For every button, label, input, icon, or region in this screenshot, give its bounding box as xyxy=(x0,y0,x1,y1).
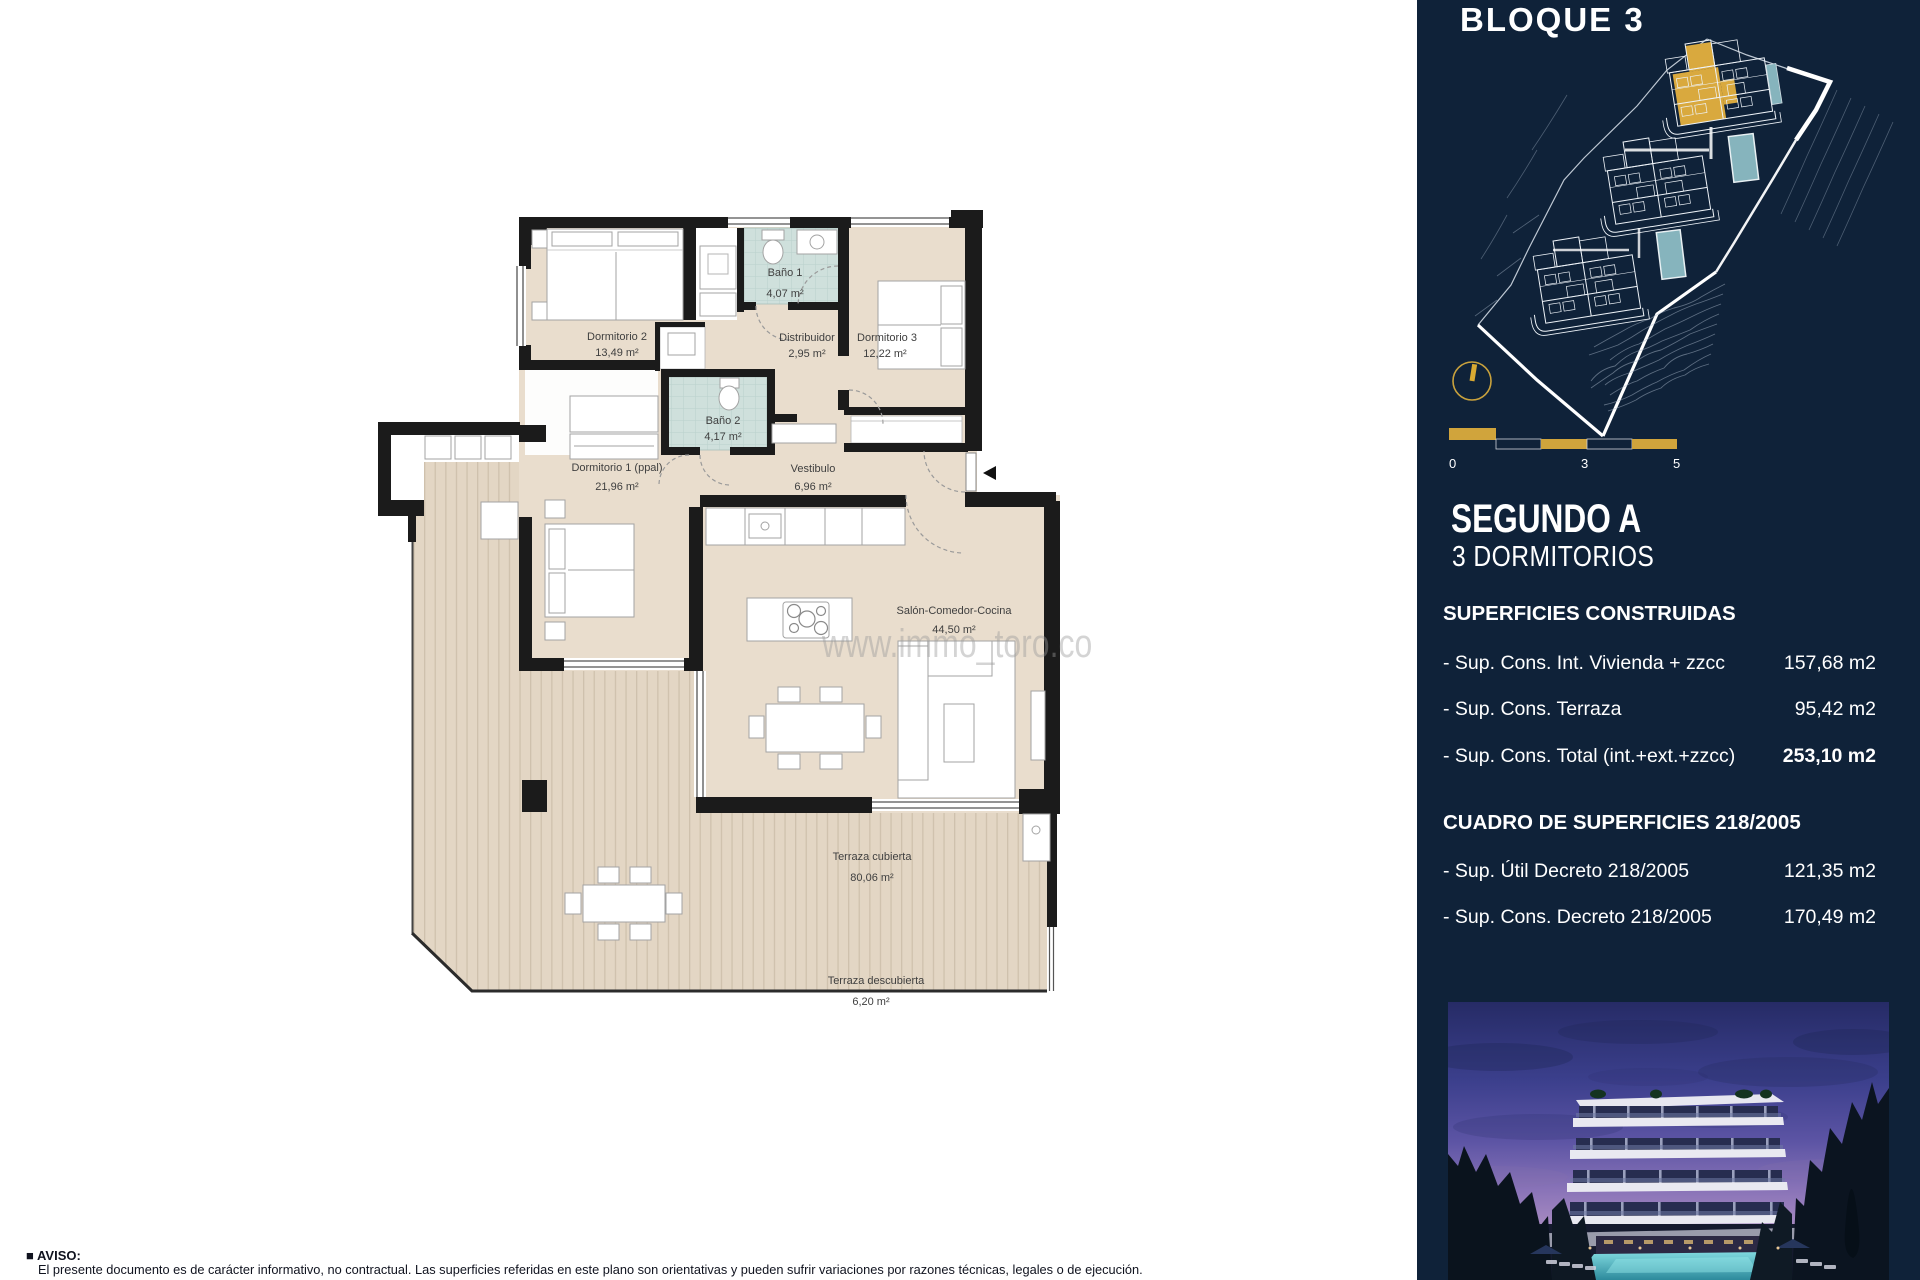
svg-text:12,22 m²: 12,22 m² xyxy=(863,348,907,360)
svg-text:4,07 m²: 4,07 m² xyxy=(766,288,804,300)
svg-text:Baño 1: Baño 1 xyxy=(768,267,803,279)
svg-text:Distribuidor: Distribuidor xyxy=(779,332,835,344)
svg-text:3: 3 xyxy=(1581,456,1588,471)
svg-text:80,06 m²: 80,06 m² xyxy=(850,872,894,884)
svg-text:Dormitorio 2: Dormitorio 2 xyxy=(587,331,647,343)
svg-text:Dormitorio 1 (ppal): Dormitorio 1 (ppal) xyxy=(571,462,662,474)
svg-text:5: 5 xyxy=(1673,456,1680,471)
svg-text:Salón-Comedor-Cocina: Salón-Comedor-Cocina xyxy=(897,605,1013,617)
svg-text:21,96 m²: 21,96 m² xyxy=(595,481,639,493)
svg-text:Terraza descubierta: Terraza descubierta xyxy=(828,975,925,987)
svg-text:Vestibulo: Vestibulo xyxy=(791,463,836,475)
svg-text:4,17 m²: 4,17 m² xyxy=(704,431,742,443)
svg-text:2,95 m²: 2,95 m² xyxy=(788,348,826,360)
svg-text:6,96 m²: 6,96 m² xyxy=(794,481,832,493)
svg-text:Terraza cubierta: Terraza cubierta xyxy=(833,851,913,863)
svg-text:0: 0 xyxy=(1449,456,1456,471)
svg-text:www.immo_toro.co: www.immo_toro.co xyxy=(821,621,1092,666)
svg-text:6,20 m²: 6,20 m² xyxy=(852,996,890,1008)
svg-text:Dormitorio 3: Dormitorio 3 xyxy=(857,332,917,344)
svg-text:Baño 2: Baño 2 xyxy=(706,415,741,427)
svg-text:13,49 m²: 13,49 m² xyxy=(595,347,639,359)
